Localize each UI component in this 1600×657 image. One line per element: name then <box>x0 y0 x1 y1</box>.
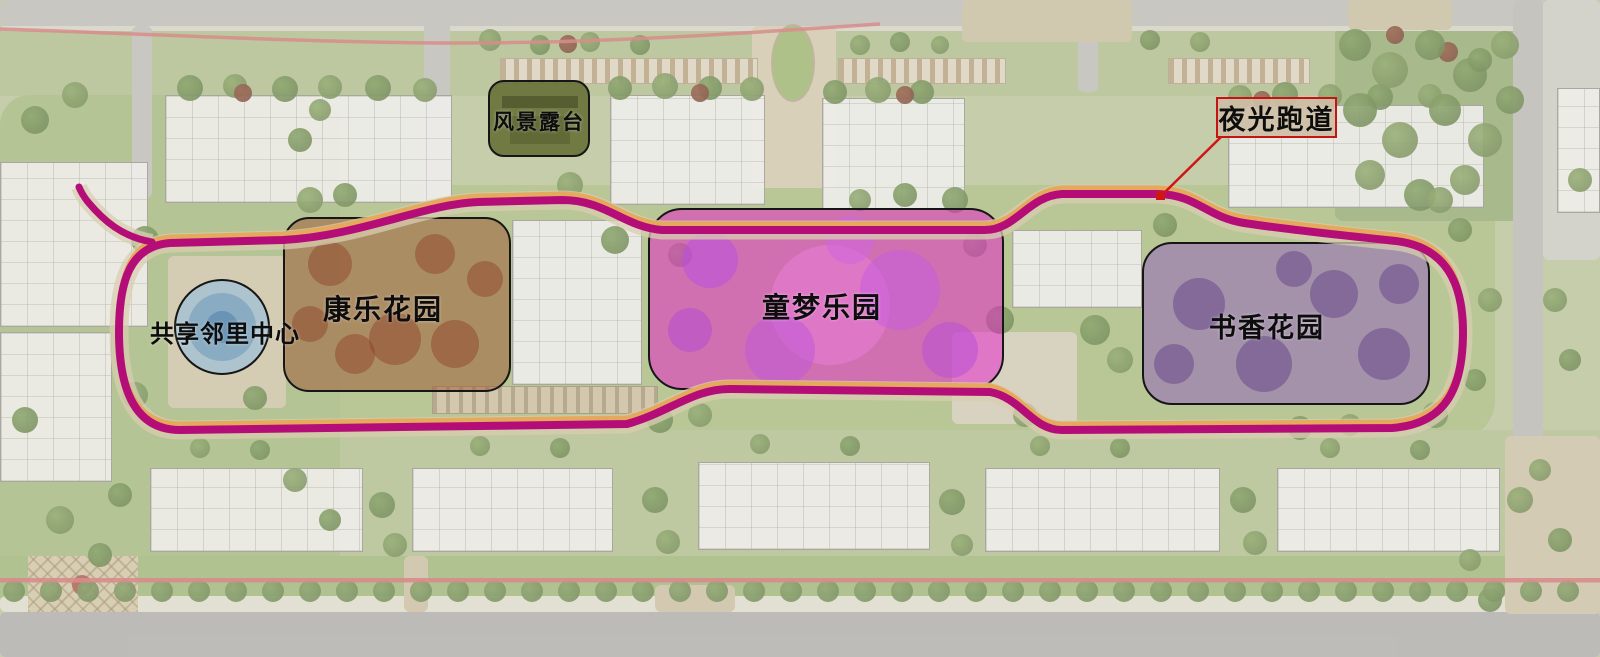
tree <box>1409 580 1431 602</box>
tree <box>108 483 132 507</box>
tree <box>1372 580 1394 602</box>
tree <box>896 86 914 104</box>
tree <box>283 468 307 492</box>
tree <box>688 403 712 427</box>
tree <box>188 580 210 602</box>
tree <box>365 75 391 101</box>
building-footprint <box>985 468 1220 552</box>
tree <box>1568 168 1592 192</box>
tree <box>1080 315 1110 345</box>
tree <box>1335 580 1357 602</box>
tree <box>1343 93 1377 127</box>
tree <box>740 77 764 101</box>
tree <box>62 82 88 108</box>
tree <box>484 580 506 602</box>
tree <box>1261 580 1283 602</box>
zone-vegetation <box>826 216 874 264</box>
tree <box>1140 30 1160 50</box>
tree <box>1483 580 1505 602</box>
tree <box>319 509 341 531</box>
zone-vegetation <box>922 322 978 378</box>
tree <box>1013 403 1037 427</box>
tree <box>601 226 629 254</box>
building-footprint <box>698 462 930 550</box>
tree <box>1339 414 1361 436</box>
zone-vegetation <box>668 308 712 352</box>
tree <box>928 580 950 602</box>
road <box>1348 0 1452 30</box>
tree <box>854 580 876 602</box>
tree <box>447 580 469 602</box>
tree <box>1230 487 1256 513</box>
tree <box>647 407 673 433</box>
tree <box>1415 30 1445 60</box>
tree <box>951 534 973 556</box>
tree <box>1107 347 1133 373</box>
tree <box>550 438 570 458</box>
luminous-track-callout: 夜光跑道 <box>1216 97 1337 138</box>
tree <box>297 187 323 213</box>
tree <box>557 172 583 198</box>
tree <box>131 226 159 254</box>
tree <box>1520 580 1542 602</box>
tree <box>656 530 680 554</box>
tree <box>1243 531 1267 555</box>
tree <box>1422 402 1448 428</box>
tree <box>652 73 678 99</box>
building-footprint <box>0 332 112 482</box>
tree <box>336 580 358 602</box>
tree <box>1386 26 1404 44</box>
tree <box>530 35 550 55</box>
zone-label-shared-neighborhood-center: 共享邻里中心 <box>140 314 310 349</box>
zone-vegetation <box>682 232 738 288</box>
tree <box>642 487 668 513</box>
tree <box>608 76 632 100</box>
tree <box>1190 32 1210 52</box>
tree <box>177 75 203 101</box>
tree <box>1339 29 1371 61</box>
tree <box>1459 549 1481 571</box>
entrance-oval-lawn <box>771 24 815 102</box>
tree <box>479 29 501 51</box>
tree <box>559 35 577 53</box>
tree <box>1529 459 1551 481</box>
tree <box>272 76 298 102</box>
tree <box>151 580 173 602</box>
tree <box>780 580 802 602</box>
tree <box>750 434 770 454</box>
site-plan: 夜光跑道 风景露台 共享邻里中心 康乐花园 童梦乐园 书香花园 <box>0 0 1600 657</box>
tree <box>595 580 617 602</box>
zone-vegetation <box>1154 344 1194 384</box>
tree <box>580 32 600 52</box>
tree <box>234 84 252 102</box>
tree <box>939 489 965 515</box>
building-footprint <box>0 162 148 327</box>
tree <box>1496 86 1524 114</box>
tree <box>893 183 917 207</box>
tree <box>1429 94 1461 126</box>
tree <box>890 32 910 52</box>
tree <box>3 580 25 602</box>
tree <box>21 106 49 134</box>
tree <box>1355 160 1385 190</box>
zone-vegetation <box>415 234 455 274</box>
tree <box>1039 580 1061 602</box>
tree <box>250 440 270 460</box>
tree <box>1548 528 1572 552</box>
tree <box>1410 440 1430 460</box>
tree <box>410 580 432 602</box>
road <box>0 612 1600 657</box>
tree <box>1298 580 1320 602</box>
tree <box>1468 123 1502 157</box>
tree <box>1288 416 1312 440</box>
tree <box>1382 122 1418 158</box>
tree <box>1468 48 1492 72</box>
tree <box>114 580 136 602</box>
zone-label-tongmeng-dreamland: 童梦乐园 <box>742 286 902 326</box>
tree <box>706 580 728 602</box>
tree <box>840 436 860 456</box>
tree <box>1187 580 1209 602</box>
zone-vegetation <box>308 242 352 286</box>
tree <box>1153 213 1177 237</box>
tree <box>1372 52 1408 88</box>
tree <box>333 183 357 207</box>
tree <box>1507 487 1533 513</box>
tree <box>299 580 321 602</box>
tree <box>1478 288 1502 312</box>
building-footprint <box>1012 230 1142 308</box>
tree <box>865 77 891 103</box>
road <box>1505 436 1600 614</box>
tree <box>190 438 210 458</box>
tree <box>1559 349 1581 371</box>
tree <box>630 35 650 55</box>
tree <box>309 99 331 121</box>
tree <box>1150 580 1172 602</box>
tree <box>931 36 949 54</box>
tree <box>373 580 395 602</box>
building-footprint <box>1557 88 1600 213</box>
tree <box>40 580 62 602</box>
building-footprint <box>1277 468 1500 552</box>
tree <box>383 533 407 557</box>
tree <box>470 436 490 456</box>
tree <box>558 580 580 602</box>
zone-vegetation <box>1358 328 1410 380</box>
tree <box>77 580 99 602</box>
tree <box>1002 580 1024 602</box>
zone-vegetation <box>335 334 375 374</box>
tree <box>12 407 38 433</box>
tree <box>88 543 112 567</box>
tree <box>46 506 74 534</box>
building-footprint <box>412 468 613 552</box>
tree <box>1030 436 1050 456</box>
zone-label-scenic-terrace: 风景露台 <box>489 106 589 136</box>
tree <box>965 580 987 602</box>
zone-label-kangle-garden: 康乐花园 <box>298 288 468 328</box>
tree <box>743 580 765 602</box>
zone-vegetation <box>1379 264 1419 304</box>
tree <box>850 35 870 55</box>
tree <box>1076 580 1098 602</box>
tree <box>823 80 847 104</box>
tree <box>262 580 284 602</box>
zone-label-shuxiang-garden: 书香花园 <box>1192 306 1342 345</box>
tree <box>891 580 913 602</box>
tree <box>521 580 543 602</box>
tree <box>318 75 342 99</box>
tree <box>1491 31 1519 59</box>
tree <box>669 580 691 602</box>
tree <box>369 492 395 518</box>
tree <box>1450 165 1480 195</box>
building-footprint <box>610 95 765 205</box>
tree <box>1110 438 1130 458</box>
tree <box>225 580 247 602</box>
tree <box>1446 580 1468 602</box>
tree <box>1543 288 1567 312</box>
tree <box>1224 580 1246 602</box>
luminous-track-label: 夜光跑道 <box>1219 98 1335 137</box>
tree <box>413 78 437 102</box>
tree <box>1320 438 1340 458</box>
tree <box>1113 580 1135 602</box>
zone-vegetation <box>467 261 503 297</box>
tree <box>1464 369 1486 391</box>
tree <box>1427 187 1453 213</box>
road <box>962 0 1132 42</box>
tree <box>122 382 148 408</box>
tree <box>1448 218 1472 242</box>
tree <box>691 84 709 102</box>
zone-vegetation <box>1276 251 1312 287</box>
tree <box>632 580 654 602</box>
parking-row <box>1168 58 1310 84</box>
tree <box>288 128 312 152</box>
tree <box>1557 580 1579 602</box>
tree <box>243 386 267 410</box>
tree <box>817 580 839 602</box>
